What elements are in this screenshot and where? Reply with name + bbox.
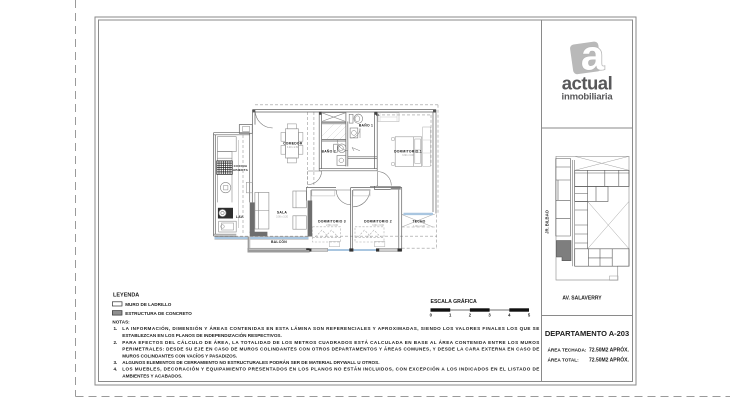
svg-text:3.30 x 3.00: 3.30 x 3.00	[402, 154, 414, 157]
svg-text:JR. BILBAO: JR. BILBAO	[545, 209, 550, 233]
svg-text:DORMITORIO 2: DORMITORIO 2	[364, 220, 392, 224]
svg-text:NOTAS:: NOTAS:	[112, 320, 130, 325]
svg-text:BAÑO 1: BAÑO 1	[359, 123, 373, 128]
svg-text:COMEDOR: COMEDOR	[283, 141, 303, 145]
svg-text:2.: 2.	[114, 340, 118, 345]
svg-text:MUROS COLINDANTES CON VACÍOS Y: MUROS COLINDANTES CON VACÍOS Y PASADIZOS…	[122, 351, 237, 358]
svg-text:ÁREA TECHADA:: ÁREA TECHADA:	[548, 347, 587, 353]
svg-text:72.50M2 APRÓX.: 72.50M2 APRÓX.	[589, 346, 629, 354]
svg-text:inmobiliaria: inmobiliaria	[562, 92, 614, 103]
svg-text:5: 5	[528, 313, 531, 318]
svg-text:ESTABLEZCAN EN LOS PLANOS DE I: ESTABLEZCAN EN LOS PLANOS DE INDEPENDIZA…	[122, 331, 281, 338]
svg-text:CL: CL	[376, 113, 380, 117]
svg-text:BALCÓN: BALCÓN	[271, 239, 287, 244]
svg-text:BAÑO 2: BAÑO 2	[322, 148, 336, 153]
svg-text:ALGUNOS ELEMENTOS DE CERRAMIEN: ALGUNOS ELEMENTOS DE CERRAMIENTO NO ESTR…	[122, 359, 379, 365]
svg-text:DEPARTAMENTO A-203: DEPARTAMENTO A-203	[545, 329, 629, 338]
svg-text:2.80 x 3.00: 2.80 x 3.00	[326, 224, 338, 227]
svg-text:1.: 1.	[114, 326, 118, 331]
svg-text:LAV.: LAV.	[236, 215, 244, 219]
svg-text:3: 3	[488, 313, 491, 318]
svg-text:AMBIENTES Y ACABADOS.: AMBIENTES Y ACABADOS.	[122, 373, 182, 378]
svg-text:ÁREA TOTAL:: ÁREA TOTAL:	[548, 357, 580, 363]
svg-text:3.00 x 3.20: 3.00 x 3.20	[276, 215, 288, 218]
svg-text:3.: 3.	[114, 360, 118, 365]
svg-text:2: 2	[469, 313, 472, 318]
svg-text:3.00 x 3.00: 3.00 x 3.00	[372, 224, 384, 227]
svg-text:ESCALA GRÁFICA: ESCALA GRÁFICA	[431, 298, 477, 305]
svg-text:PARA EFECTOS DEL CÁLCULO DE ÁR: PARA EFECTOS DEL CÁLCULO DE ÁREA, LA TOT…	[122, 339, 539, 345]
svg-text:a: a	[581, 32, 605, 79]
svg-text:LEYENDA: LEYENDA	[113, 293, 139, 299]
svg-text:1.00 x 2.20: 1.00 x 2.20	[413, 225, 425, 228]
svg-text:SALA: SALA	[277, 211, 288, 215]
svg-text:3.00 x 2.80: 3.00 x 2.80	[287, 146, 299, 149]
svg-text:AV. SALAVERRY: AV. SALAVERRY	[562, 296, 602, 302]
svg-text:0: 0	[430, 313, 433, 318]
svg-text:TECHO: TECHO	[412, 220, 425, 224]
svg-text:1: 1	[449, 313, 452, 318]
svg-text:actual: actual	[562, 73, 612, 94]
svg-text:ABIERTA: ABIERTA	[233, 168, 249, 172]
svg-text:PERIMETRALES: DESDE SU EJE EN: PERIMETRALES: DESDE SU EJE EN CASO DE MU…	[122, 346, 539, 352]
svg-text:DORMITORIO 1: DORMITORIO 1	[394, 149, 422, 153]
svg-text:4: 4	[508, 313, 511, 318]
svg-text:DORMITORIO 3: DORMITORIO 3	[318, 220, 346, 224]
svg-text:LOS MUEBLES, DECORACIÓN Y EQUI: LOS MUEBLES, DECORACIÓN Y EQUIPAMIENTO P…	[122, 365, 539, 372]
svg-text:ESTRUCTURA DE CONCRETO: ESTRUCTURA DE CONCRETO	[125, 311, 192, 316]
svg-text:LA INFORMACIÓN, DIMENSIÓN Y ÁR: LA INFORMACIÓN, DIMENSIÓN Y ÁREAS CONTEN…	[122, 324, 539, 331]
svg-text:4.: 4.	[114, 367, 118, 372]
svg-text:72.50M2 APRÓX.: 72.50M2 APRÓX.	[589, 356, 629, 364]
svg-text:MURO DE LADRILLO: MURO DE LADRILLO	[125, 302, 172, 307]
